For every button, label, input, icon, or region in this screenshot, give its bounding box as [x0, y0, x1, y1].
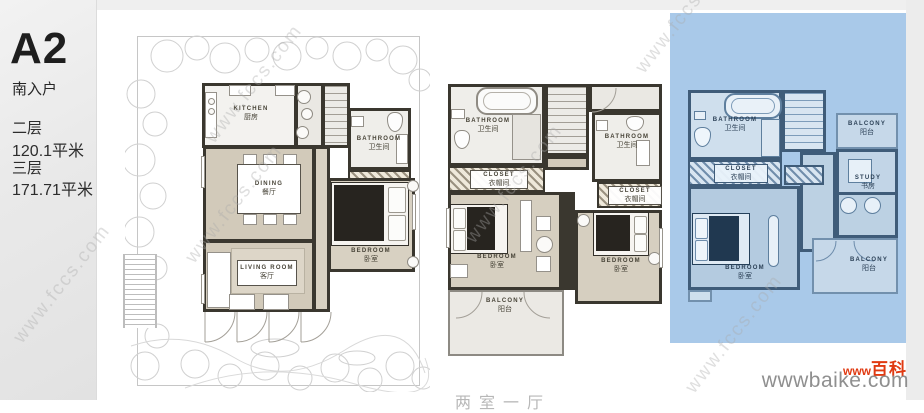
label-en: BALCONY	[844, 257, 894, 264]
floor3-blue-panel: BATHROOM 卫生间 BALCONY 阳台 CLOSET 衣帽间 STUDY…	[670, 13, 906, 343]
label-cn: 书房	[846, 183, 890, 191]
stool	[536, 216, 551, 231]
label-en: STUDY	[846, 175, 890, 182]
bed-pillow	[695, 240, 708, 261]
sofa	[207, 252, 231, 308]
watermark-baike-url: wwwbaike.com	[762, 369, 909, 393]
label-cn: 卧室	[590, 266, 652, 274]
bed-pillow	[453, 208, 466, 229]
label-bathroom: BATHROOM 卫生间	[350, 136, 408, 151]
label-en: BALCONY	[842, 121, 892, 128]
label-en: BATHROOM	[706, 117, 764, 124]
floorplan-right: BATHROOM 卫生间 BALCONY 阳台 CLOSET 衣帽间 STUDY…	[670, 13, 906, 343]
wardrobe	[520, 200, 532, 252]
label-cn: 卫生间	[457, 126, 519, 134]
label-living: LIVING ROOM 客厅	[240, 265, 294, 280]
label-balcony-top: BALCONY 阳台	[842, 121, 892, 136]
stove-burner	[208, 108, 215, 115]
label-cn: 卧室	[341, 256, 401, 264]
label-cn: 阳台	[844, 265, 894, 273]
label-cn: 卫生间	[598, 142, 656, 150]
label-cn: 卫生间	[350, 144, 408, 152]
bed	[331, 182, 409, 246]
coffee-table: LIVING ROOM 客厅	[237, 260, 297, 286]
label-closet-right: CLOSET 衣帽间	[608, 186, 662, 205]
label-en: BATHROOM	[350, 136, 408, 143]
door-swing-arcs	[203, 310, 337, 350]
label-bedroom-left: BEDROOM 卧室	[466, 254, 528, 269]
label-en: BEDROOM	[466, 254, 528, 261]
plant	[296, 126, 309, 139]
label-en: CLOSET	[718, 166, 764, 173]
bed-pillow	[634, 216, 647, 234]
floor3-area: 171.71平米	[12, 176, 93, 200]
floorplan-page: { "sidebar": { "unit_code": "A2", "entry…	[0, 0, 924, 400]
garden-trellis	[123, 254, 157, 328]
door-swing-arcs	[590, 86, 620, 116]
armchair	[263, 294, 289, 310]
label-cn: 卫生间	[706, 125, 764, 133]
bathtub	[724, 93, 782, 119]
bathroom-sink	[351, 116, 364, 127]
label-cn: 阳台	[842, 129, 892, 137]
label-en: BALCONY	[474, 298, 536, 305]
staircase	[322, 83, 350, 148]
label-cn: 衣帽间	[612, 196, 658, 204]
dining-chair	[243, 214, 257, 225]
bed-pillow	[388, 187, 406, 213]
bathroom-sink	[596, 120, 608, 131]
kitchen-cabinet	[275, 85, 295, 96]
label-study: STUDY 书房	[846, 175, 890, 190]
bed-pillow	[634, 234, 647, 252]
bed-pillow	[388, 215, 406, 241]
label-bathroom-right: BATHROOM 卫生间	[598, 134, 656, 149]
dining-chair	[283, 214, 297, 225]
stove-burner	[208, 98, 215, 105]
bathroom-sink	[694, 111, 706, 120]
bed	[692, 213, 750, 265]
label-en: BEDROOM	[590, 258, 652, 265]
floorplan-left: DINING 餐厅 LIVING ROOM 客厅 KITCHEN 厨房 BATH…	[125, 28, 430, 392]
study-chair	[840, 197, 857, 214]
armchair	[229, 294, 255, 310]
clipped-caption: 两室一厅	[455, 389, 551, 413]
label-bathroom-left: BATHROOM 卫生间	[457, 118, 519, 133]
plant	[297, 90, 311, 104]
label-cn: 阳台	[474, 306, 536, 314]
bed-duvet	[334, 185, 384, 241]
right-strip	[906, 0, 924, 400]
wardrobe-hatch	[784, 165, 824, 185]
label-bedroom: BEDROOM 卧室	[341, 248, 401, 263]
nightstand	[407, 256, 419, 268]
bed	[593, 212, 649, 256]
bed-duvet	[596, 215, 630, 251]
staircase	[782, 90, 826, 152]
label-en: CLOSET	[612, 188, 658, 195]
floor2-label: 二层	[12, 117, 42, 138]
mirror	[768, 215, 779, 267]
label-en: BATHROOM	[457, 118, 519, 125]
label-balcony-bottom: BALCONY 阳台	[844, 257, 894, 272]
label-en: LIVING ROOM	[240, 265, 294, 272]
label-cn: 客厅	[240, 273, 294, 281]
info-panel: A2 南入户 二层 120.1平米 三层 171.71平米	[0, 0, 97, 400]
side-table	[536, 236, 553, 253]
stair-landing	[545, 156, 589, 170]
label-closet: CLOSET 衣帽间	[714, 164, 768, 183]
bathtub	[476, 87, 538, 115]
dining-chair	[263, 214, 277, 225]
plant	[301, 108, 313, 120]
floor3-label: 三层	[12, 157, 42, 178]
round-mat	[577, 214, 590, 227]
label-en: BATHROOM	[598, 134, 656, 141]
entry-step	[688, 290, 712, 302]
window	[659, 228, 663, 268]
label-en: BEDROOM	[716, 265, 774, 272]
study-chair	[864, 197, 881, 214]
bed-duvet	[709, 216, 739, 261]
nightstand	[407, 180, 419, 192]
unit-code: A2	[10, 24, 68, 74]
label-balcony: BALCONY 阳台	[474, 298, 536, 313]
top-strip	[0, 0, 924, 10]
label-cn: 衣帽间	[718, 174, 764, 182]
label-bedroom-right: BEDROOM 卧室	[590, 258, 652, 273]
partition-wall	[562, 192, 575, 290]
window	[412, 194, 416, 230]
label-en: BEDROOM	[341, 248, 401, 255]
label-bathroom: BATHROOM 卫生间	[706, 117, 764, 132]
entry-direction-label: 南入户	[12, 78, 57, 99]
window	[201, 156, 205, 188]
stool	[536, 256, 551, 272]
window	[446, 208, 450, 248]
label-cn: 卧室	[466, 262, 528, 270]
bed-pillow	[695, 218, 708, 239]
window	[201, 274, 205, 304]
